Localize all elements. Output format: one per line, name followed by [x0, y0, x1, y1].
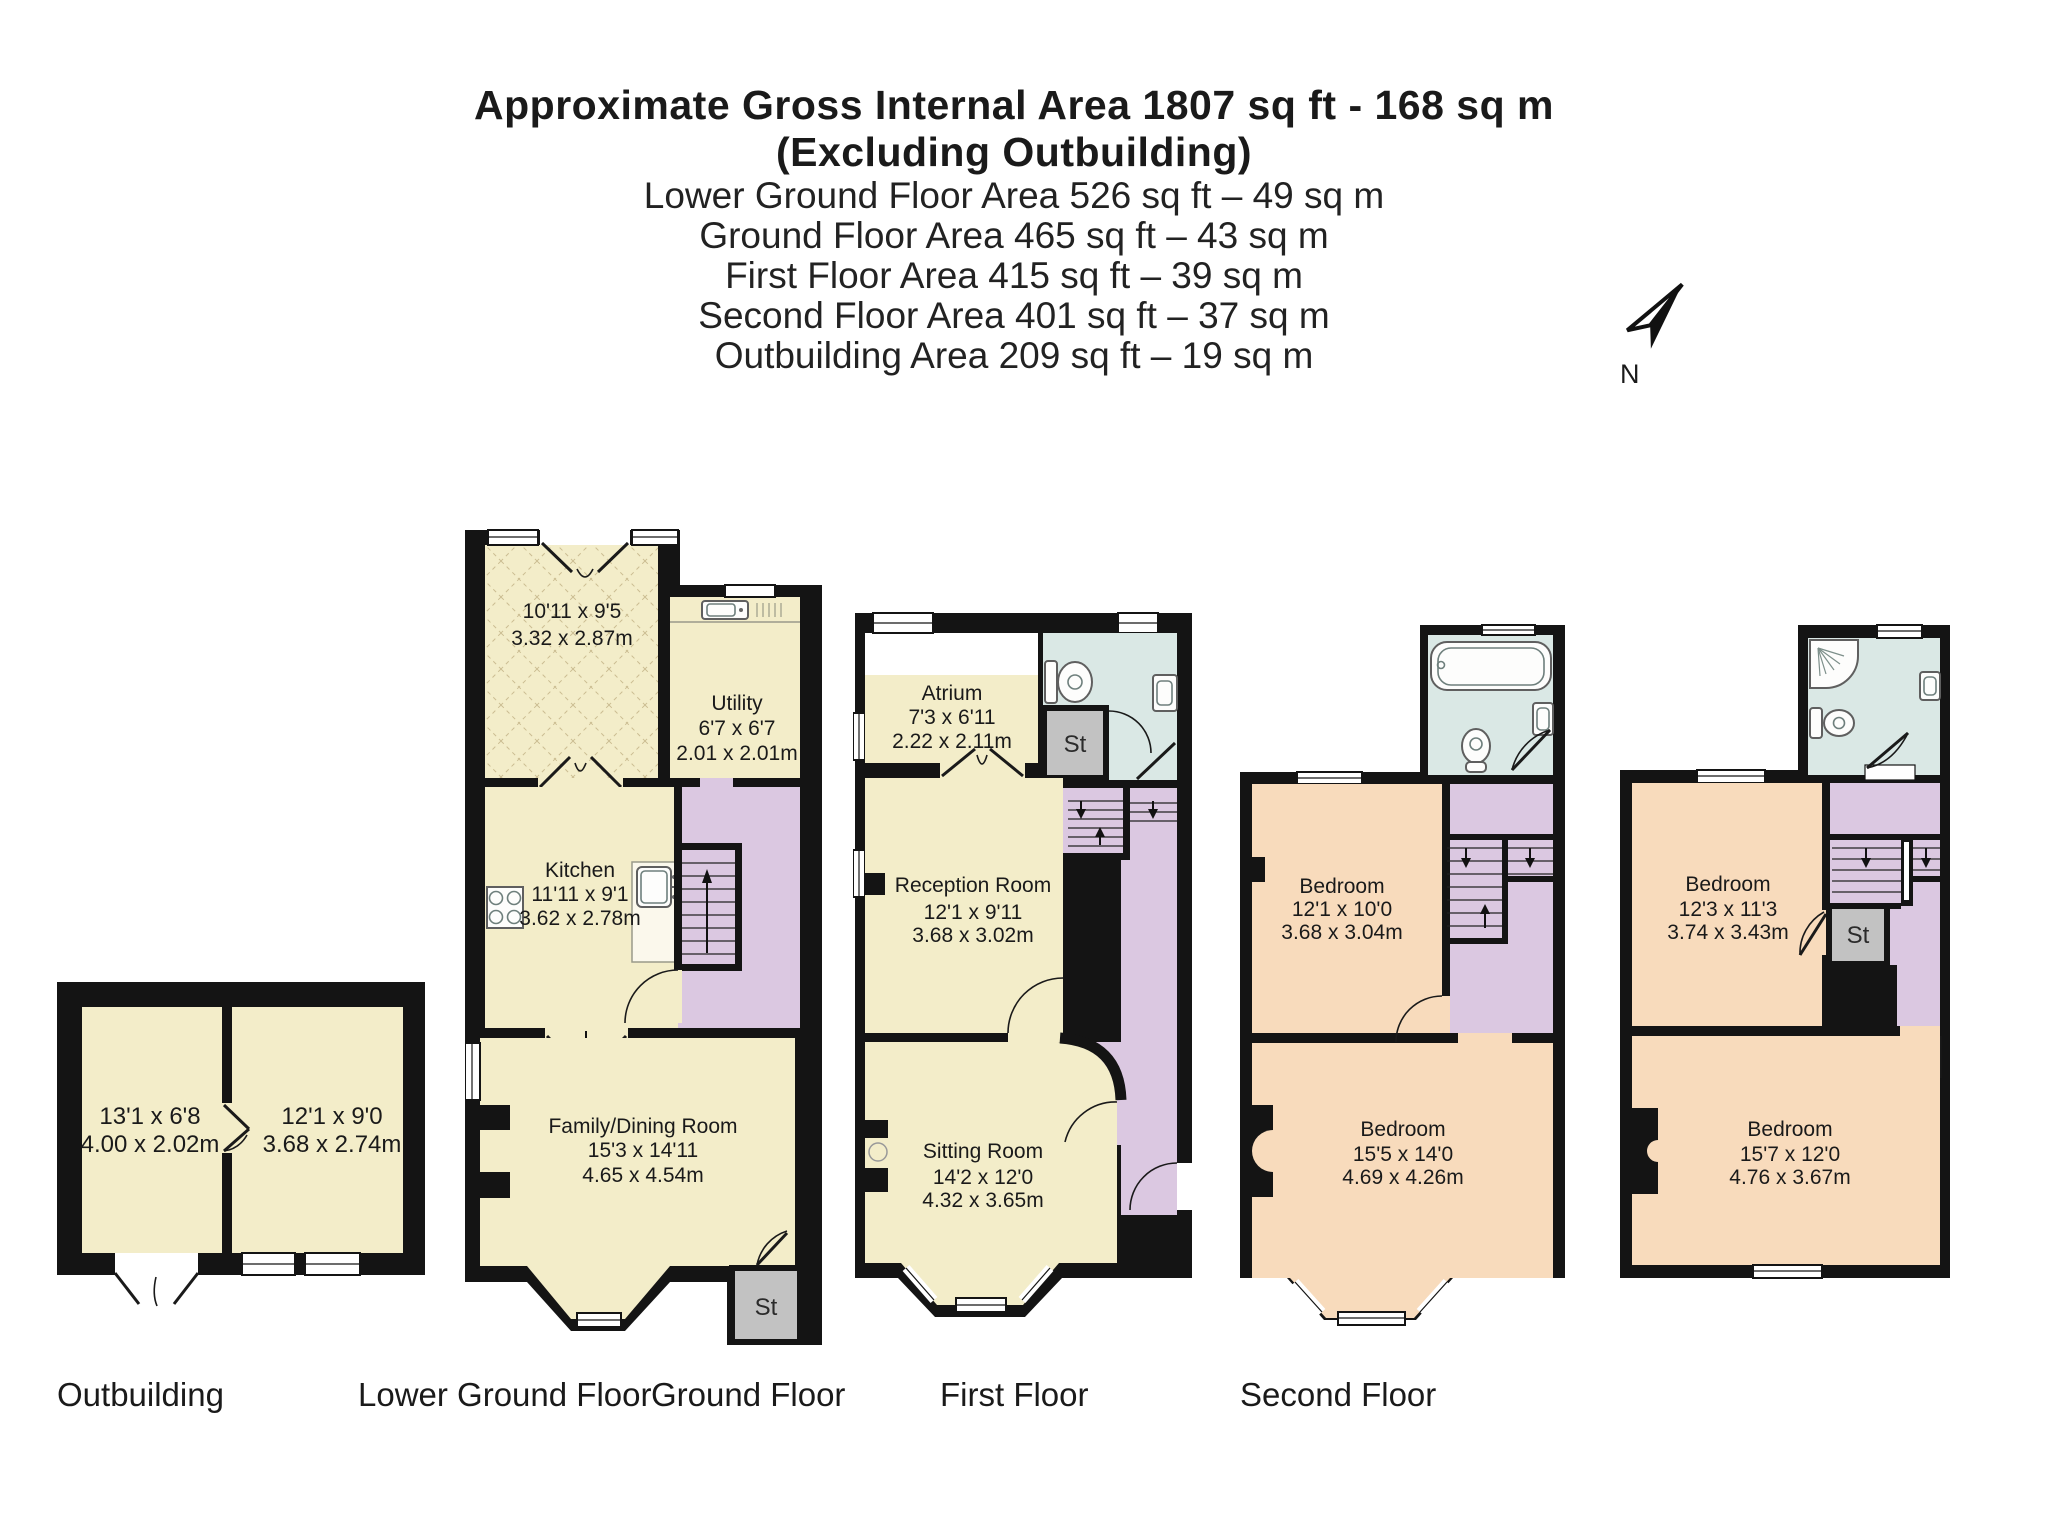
hob-icon [487, 887, 523, 928]
outbuilding-room-left: 13'1 x 6'8 4.00 x 2.02m [81, 1007, 222, 1253]
storage-box: St [1826, 903, 1890, 967]
room-dim-imperial: 10'11 x 9'5 [523, 600, 622, 623]
toilet-icon [1462, 729, 1490, 772]
reception-door-gap [1008, 1033, 1063, 1042]
room-dim-imperial: 15'3 x 14'11 [588, 1139, 698, 1162]
room-name: Bedroom [1685, 873, 1770, 896]
entrance-double-door [115, 1253, 198, 1306]
bathroom [1428, 625, 1553, 775]
room-name: Atrium [922, 682, 983, 705]
cellar-room: 10'11 x 9'5 3.32 x 2.87m [485, 545, 658, 778]
atrium-room: Atrium 7'3 x 6'11 2.22 x 2.11m [865, 675, 1038, 763]
room-dim-imperial: 6'7 x 6'7 [699, 717, 776, 740]
room-dim-imperial: 12'1 x 10'0 [1292, 898, 1392, 921]
storage-label: St [1847, 922, 1870, 949]
staircase [678, 787, 800, 1028]
area-line-first: First Floor Area 415 sq ft – 39 sq m [314, 256, 1714, 296]
floorplan-page: Approximate Gross Internal Area 1807 sq … [0, 0, 2048, 1536]
bedroom-back: Bedroom 15'5 x 14'0 4.69 x 4.26m [1252, 1043, 1553, 1318]
floor-plan-outbuilding: 13'1 x 6'8 4.00 x 2.02m 12'1 x 9'0 3.68 … [57, 982, 429, 1332]
utility-sink-icon [702, 601, 748, 619]
bathroom [1808, 625, 1940, 780]
floor-plan-second: Bedroom 12'3 x 11'3 3.74 x 3.43m St [1618, 618, 1953, 1288]
caption-first: First Floor [940, 1376, 1089, 1414]
room-dim-metric: 4.32 x 3.65m [922, 1189, 1043, 1212]
bedroom-front: Bedroom 12'1 x 10'0 3.68 x 3.04m [1252, 784, 1442, 1033]
room-dim-imperial: 12'1 x 9'11 [924, 901, 1023, 924]
bedroom-front: Bedroom 12'3 x 11'3 3.74 x 3.43m [1632, 783, 1822, 1026]
room-dim-metric: 3.68 x 2.74m [263, 1131, 402, 1158]
room-dim-imperial: 7'3 x 6'11 [908, 706, 995, 729]
area-line-lower-ground: Lower Ground Floor Area 526 sq ft – 49 s… [314, 176, 1714, 216]
header: Approximate Gross Internal Area 1807 sq … [314, 82, 1714, 376]
room-dim-imperial: 13'1 x 6'8 [99, 1103, 200, 1130]
north-label: N [1620, 359, 1640, 389]
caption-lower-ground: Lower Ground Floor [358, 1376, 651, 1414]
storage-box: St [1041, 705, 1109, 781]
utility-room: Utility 6'7 x 6'7 2.01 x 2.01m [670, 585, 800, 787]
room-name: Family/Dining Room [548, 1115, 737, 1138]
bathtub-icon [1431, 642, 1551, 690]
room-name: Reception Room [895, 874, 1051, 897]
storage-label: St [1064, 731, 1087, 758]
storage-label: St [755, 1294, 778, 1321]
room-dim-metric: 3.32 x 2.87m [511, 627, 632, 650]
caption-outbuilding: Outbuilding [57, 1376, 224, 1414]
room-dim-metric: 2.01 x 2.01m [676, 742, 797, 765]
room-dim-metric: 4.69 x 4.26m [1342, 1166, 1463, 1189]
excluding-note: (Excluding Outbuilding) [314, 129, 1714, 176]
room-dim-metric: 3.68 x 3.02m [912, 924, 1033, 947]
room-dim-imperial: 15'7 x 12'0 [1740, 1143, 1840, 1166]
floor-plan-ground: Atrium 7'3 x 6'11 2.22 x 2.11m [853, 605, 1198, 1340]
basin-icon [1153, 675, 1177, 711]
room-dim-metric: 3.68 x 3.04m [1281, 921, 1402, 944]
outbuilding-room-right: 12'1 x 9'0 3.68 x 2.74m [232, 1007, 403, 1253]
room-dim-imperial: 14'2 x 12'0 [933, 1166, 1033, 1189]
floor-plan-first: Bedroom 12'1 x 10'0 3.68 x 3.04m [1238, 618, 1568, 1338]
room-name: Bedroom [1747, 1118, 1832, 1141]
room-dim-imperial: 11'11 x 9'1 [531, 883, 628, 906]
room-dim-imperial: 15'5 x 14'0 [1353, 1143, 1453, 1166]
room-dim-metric: 3.74 x 3.43m [1667, 921, 1788, 944]
toilet-icon [1810, 708, 1854, 738]
room-dim-metric: 4.76 x 3.67m [1729, 1166, 1850, 1189]
room-dim-imperial: 12'3 x 11'3 [1679, 898, 1778, 921]
room-name: Bedroom [1299, 875, 1384, 898]
basin-icon [1920, 672, 1940, 700]
room-dim-metric: 4.65 x 4.54m [582, 1164, 703, 1187]
caption-ground: Ground Floor [651, 1376, 845, 1414]
room-dim-metric: 4.00 x 2.02m [81, 1131, 220, 1158]
area-line-outbuilding: Outbuilding Area 209 sq ft – 19 sq m [314, 336, 1714, 376]
area-line-second: Second Floor Area 401 sq ft – 37 sq m [314, 296, 1714, 336]
toilet-icon [1045, 661, 1092, 703]
area-line-ground: Ground Floor Area 465 sq ft – 43 sq m [314, 216, 1714, 256]
gross-area-title: Approximate Gross Internal Area 1807 sq … [314, 82, 1714, 129]
floor-plan-lower-ground: 10'11 x 9'5 3.32 x 2.87m [465, 525, 830, 1355]
room-name: Kitchen [545, 859, 615, 882]
north-arrow-icon: N [1580, 268, 1730, 398]
room-dim-imperial: 12'1 x 9'0 [281, 1103, 382, 1130]
room-dim-metric: 2.22 x 2.11m [892, 730, 1012, 753]
caption-second: Second Floor [1240, 1376, 1436, 1414]
reception-room: Reception Room 12'1 x 9'11 3.68 x 3.02m [865, 778, 1063, 1042]
kitchen-room: Kitchen 11'11 x 9'1 3.62 x 2.78m [485, 787, 678, 1028]
room-dim-metric: 3.62 x 2.78m [519, 907, 640, 930]
atrium-rooflight [865, 633, 1038, 675]
room-name: Bedroom [1360, 1118, 1445, 1141]
room-name: Sitting Room [923, 1140, 1043, 1163]
room-name: Utility [711, 692, 763, 715]
bedroom-back: Bedroom 15'7 x 12'0 4.76 x 3.67m [1632, 1036, 1940, 1278]
